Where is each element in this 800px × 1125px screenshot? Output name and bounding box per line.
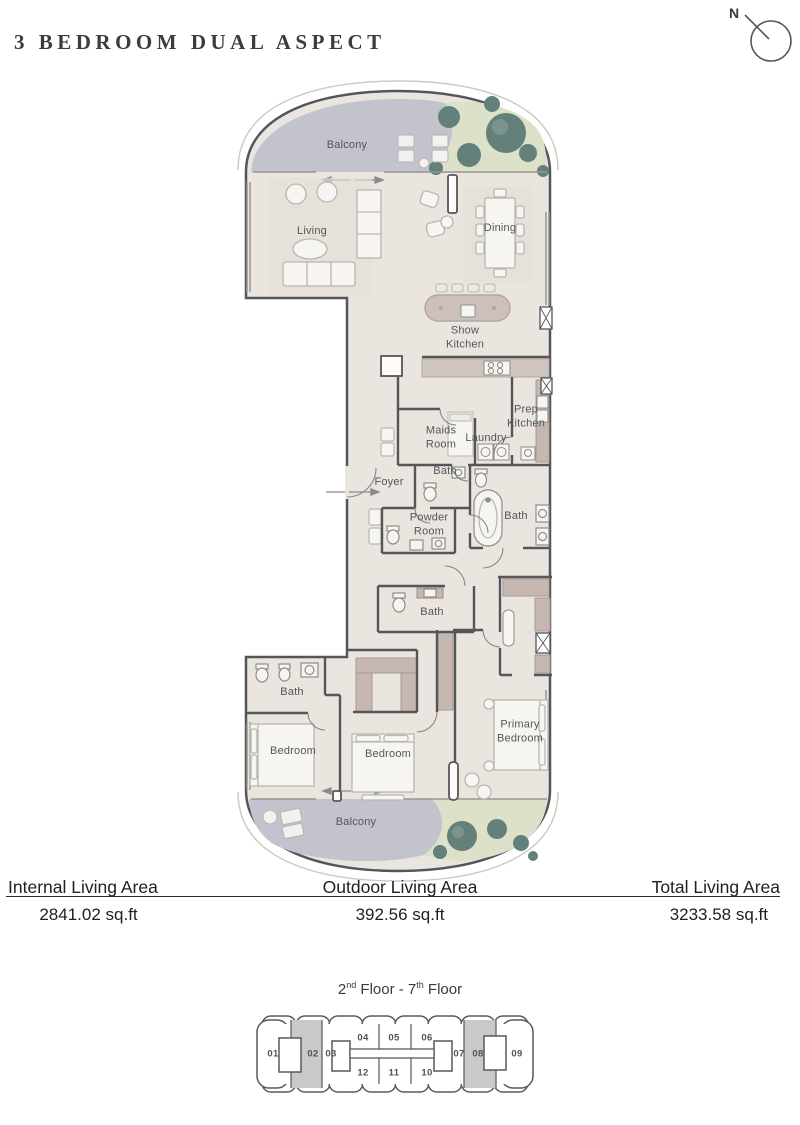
floor-range-base2: Floor - 7 [356,981,416,998]
keyplan-unit-09: 09 [511,1049,522,1060]
room-label-foyer: Foyer [374,476,403,490]
keyplan-unit-11: 11 [389,1068,400,1079]
room-label-prep-kitchen: Prep Kitchen [500,403,552,431]
balcony-bottom-area [249,799,547,861]
floor-range-base1: 2 [338,981,346,998]
room-label-bedroom-1: Bedroom [270,745,316,759]
floor-range-title: 2nd Floor - 7th Floor [0,980,800,998]
floor-range-base3: Floor [424,981,462,998]
keyplan-unit-07: 07 [453,1049,464,1060]
keyplan-unit-02: 02 [307,1049,318,1060]
room-label-primary-bedroom: Primary Bedroom [487,718,553,746]
internal-area-value: 2841.02 sq.ft [6,905,171,925]
total-area-value: 3233.58 sq.ft [610,905,780,925]
stats-divider [6,896,780,897]
room-label-bath-ensuite: Bath [280,686,303,700]
dressing-island [503,610,514,646]
keyplan-unit-12: 12 [357,1068,368,1079]
outdoor-area-label: Outdoor Living Area [300,877,500,898]
room-label-bedroom-2: Bedroom [365,748,411,762]
keyplan [257,1016,533,1092]
compass-icon [745,15,791,61]
room-label-balcony-bottom: Balcony [336,816,377,830]
room-label-balcony-top: Balcony [327,139,368,153]
outdoor-area-value: 392.56 sq.ft [300,905,500,925]
room-label-laundry: Laundry [465,432,506,446]
room-label-living: Living [297,225,327,239]
room-label-bath-hall: Bath [420,606,443,620]
room-label-bath-main: Bath [504,510,527,524]
keyplan-unit-08: 08 [472,1049,483,1060]
floorplan-drawing [0,0,800,1125]
floor-range-sup2: th [416,980,424,990]
floor-range-sup1: nd [346,980,356,990]
keyplan-unit-10: 10 [421,1068,432,1079]
room-label-show-kitchen: Show Kitchen [438,324,492,352]
room-label-powder-room: Powder Room [401,511,457,539]
keyplan-unit-06: 06 [421,1033,432,1044]
keyplan-unit-05: 05 [388,1033,399,1044]
room-label-maids-room: Maids Room [418,424,464,452]
internal-area-label: Internal Living Area [8,877,158,898]
keyplan-unit-01: 01 [267,1049,278,1060]
total-area-label: Total Living Area [610,877,780,898]
floorplan-page: 3 BEDROOM DUAL ASPECT N [0,0,800,1125]
room-label-bath-maids: Bath [433,465,456,479]
keyplan-unit-03: 03 [325,1049,336,1060]
room-label-dining: Dining [484,222,516,236]
keyplan-unit-04: 04 [357,1033,368,1044]
